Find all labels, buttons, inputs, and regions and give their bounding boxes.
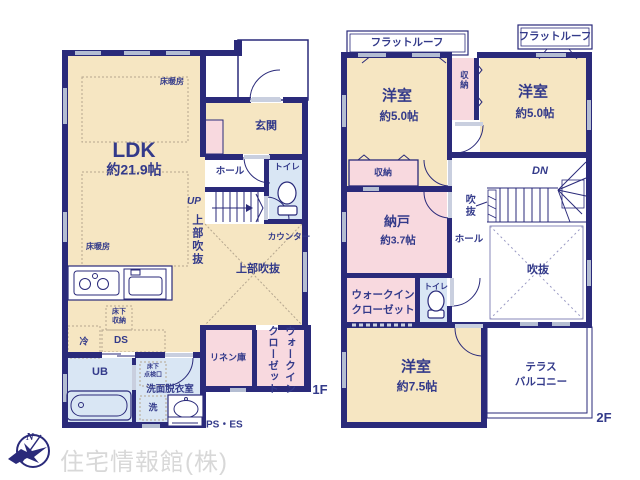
terrace-balcony-rail <box>487 327 592 418</box>
floorplan-page: N LDK 約21.9帖 床暖房 床暖房 玄関 ホール トイレ UP カウンター… <box>0 0 640 480</box>
toilet-icon-1f <box>278 182 297 215</box>
kitchen-counter-icon <box>68 266 172 300</box>
floor2-void <box>490 226 583 319</box>
floor2-stairs[interactable] <box>476 162 586 222</box>
compass-north-label: N <box>25 431 35 443</box>
compass: N <box>8 431 49 467</box>
pipe-space-niche <box>168 417 202 426</box>
floorplan-canvas: N <box>0 0 640 480</box>
watermark: 住宅情報館(株) <box>60 442 228 477</box>
floor2-room-fills <box>347 58 586 422</box>
